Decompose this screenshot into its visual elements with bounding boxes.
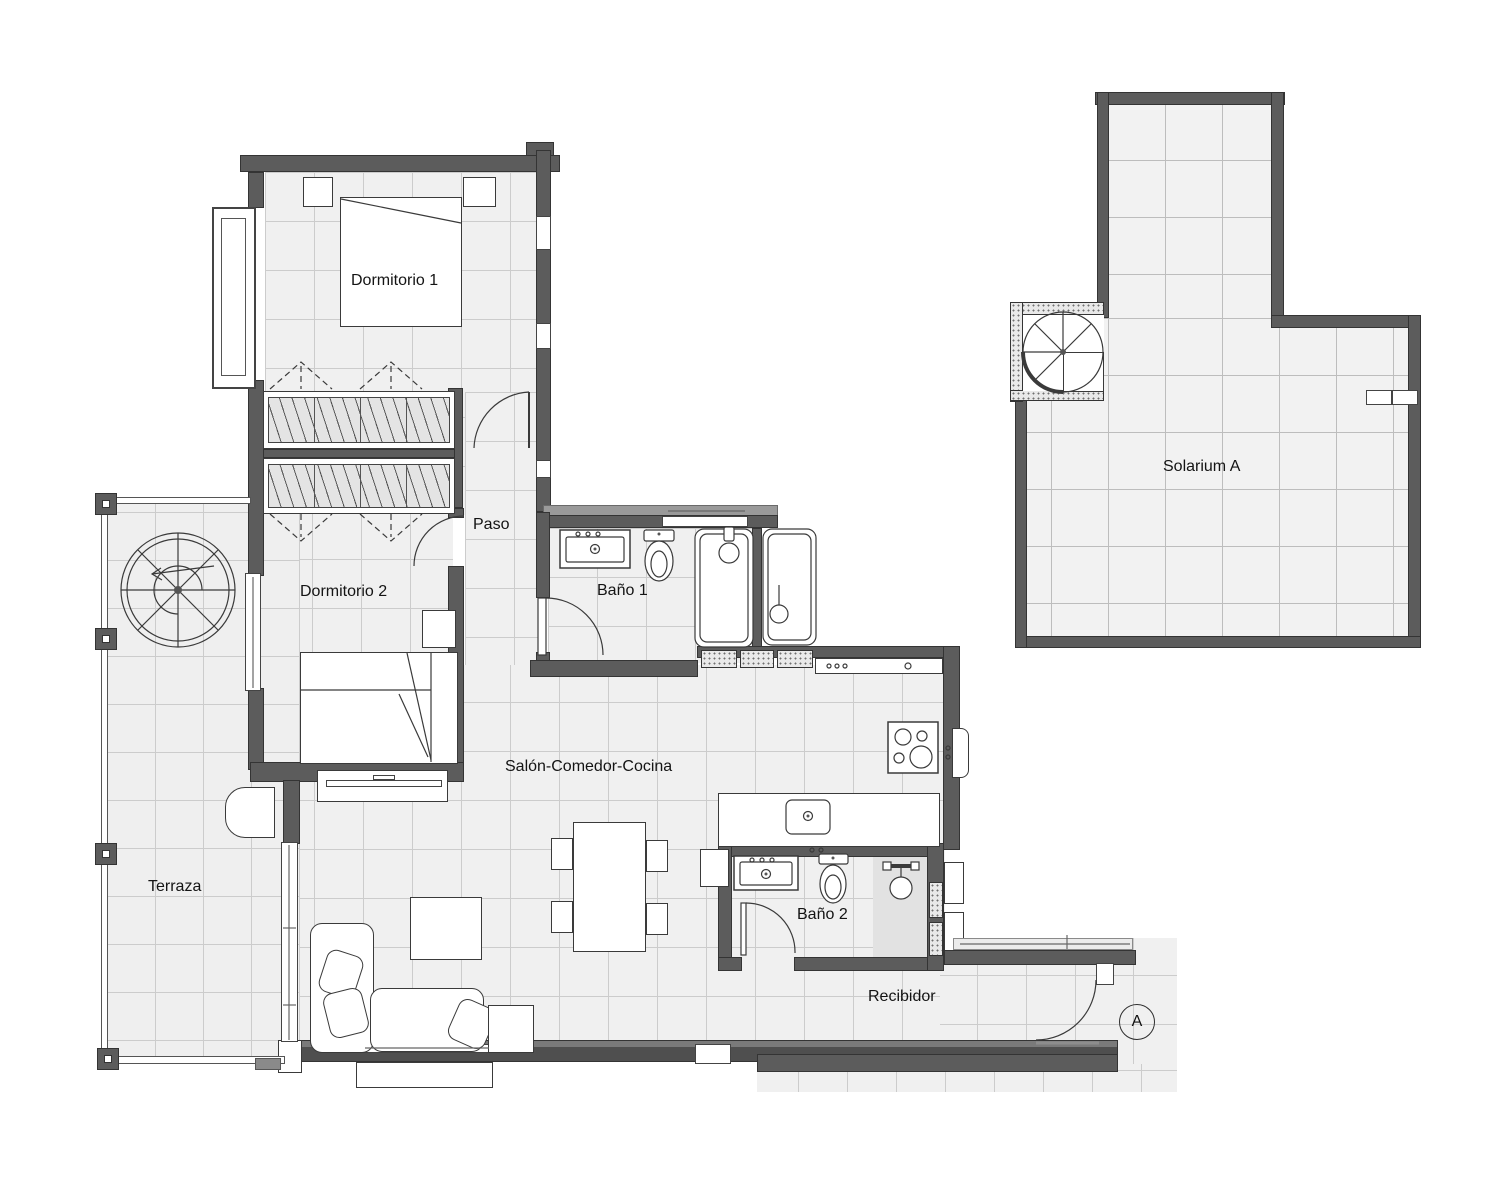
wardrobe-rail-2 <box>268 464 450 508</box>
tall-cabinet-icon <box>952 728 969 778</box>
wardrobe-icon-2 <box>263 458 455 514</box>
room-label-terraza: Terraza <box>148 878 201 896</box>
column-3 <box>777 650 813 668</box>
window-living-terraza <box>281 842 298 1042</box>
railing-post-1 <box>95 493 117 515</box>
shaft-column-1 <box>929 882 943 918</box>
wall-dorm1-top <box>240 155 560 172</box>
room-label-dormitorio-2: Dormitorio 2 <box>300 583 387 601</box>
nightstand-icon <box>422 610 456 648</box>
railing-post-3 <box>95 843 117 865</box>
sol-wall-step <box>1271 315 1421 328</box>
shaft-column-2 <box>929 922 943 956</box>
vent-window-2 <box>536 323 551 349</box>
sol-wall-left-upper <box>1097 92 1109 318</box>
wall-bano1-bottom <box>530 660 698 677</box>
room-label-paso: Paso <box>473 516 509 534</box>
wall-tub-divider <box>752 528 762 650</box>
bed1-pillow-right <box>463 177 496 207</box>
kitchen-counter <box>815 658 943 674</box>
window-dormitorio2 <box>245 573 261 691</box>
room-label-bano-1: Baño 1 <box>597 582 648 600</box>
wall-bottom-step <box>757 1054 1118 1072</box>
shaft-niche-1 <box>944 862 964 904</box>
window-dormitorio1 <box>212 207 256 389</box>
island-stool <box>700 849 729 887</box>
wardrobe-divider <box>263 449 455 458</box>
bed1-pillow-left <box>303 177 333 207</box>
rug-square <box>410 897 482 960</box>
sol-wall-top <box>1095 92 1285 105</box>
sol-wall-bottom <box>1015 636 1421 648</box>
ac-unit-icon <box>225 787 275 838</box>
sol-window-2 <box>1392 390 1418 405</box>
wall-living-left-stub <box>283 780 300 844</box>
wall-bano2-bottom-a <box>718 957 742 971</box>
bano1-sliding-door <box>662 516 748 527</box>
kitchen-island-icon <box>718 793 940 847</box>
room-label-solarium: Solarium A <box>1163 458 1240 476</box>
window-dormitorio1-inner <box>221 218 246 376</box>
entry-door-jamb <box>1096 963 1114 985</box>
bathtub-icon-neighbor <box>763 529 816 645</box>
recibidor-window-break <box>695 1044 731 1064</box>
terraza-railing-top <box>101 497 251 504</box>
window-sill <box>356 1062 493 1088</box>
sol-wall-right <box>1408 315 1421 648</box>
room-label-salon: Salón-Comedor-Cocina <box>505 758 672 776</box>
column-2 <box>740 650 774 668</box>
railing-post-2 <box>95 628 117 650</box>
room-label-bano-2: Baño 2 <box>797 906 848 924</box>
railing-end-block <box>255 1058 281 1070</box>
double-bed-icon <box>340 197 462 327</box>
wardrobe-rail-1 <box>268 397 450 443</box>
floor-plan: Dormitorio 1 Dormitorio 2 Paso Baño 1 Sa… <box>0 0 1486 1200</box>
coffee-table-icon <box>488 1005 534 1053</box>
floor-bano-1 <box>548 528 753 663</box>
stair-landing <box>1063 352 1104 392</box>
chair-icon-2 <box>551 901 573 933</box>
recibidor-ledge <box>953 938 1133 950</box>
tv-unit-icon <box>317 770 448 802</box>
wardrobe-icon-1 <box>263 391 455 449</box>
section-marker-a-label: A <box>1132 1013 1143 1031</box>
floor-solarium-upper <box>1108 103 1273 321</box>
sol-window-1 <box>1366 390 1392 405</box>
shower-floor-shade <box>873 857 927 957</box>
sol-wall-right-upper <box>1271 92 1284 328</box>
chair-icon-1 <box>551 838 573 870</box>
chair-icon-3 <box>646 840 668 872</box>
single-bed-icon <box>300 652 458 764</box>
stair-enclosure-left <box>1010 302 1023 402</box>
dining-table-icon <box>573 822 646 952</box>
column-1 <box>701 650 737 668</box>
wall-left-upper <box>248 172 264 208</box>
tv-stand <box>373 775 395 780</box>
tv-screen <box>326 780 442 787</box>
vent-window-3 <box>536 460 551 478</box>
stair-enclosure-top <box>1010 302 1104 315</box>
railing-post-4 <box>97 1048 119 1070</box>
room-label-dormitorio-1: Dormitorio 1 <box>351 272 438 290</box>
chair-icon-4 <box>646 903 668 935</box>
wall-bano1-left-upper <box>536 512 550 598</box>
wall-left-lower <box>248 688 264 770</box>
section-marker-a: A <box>1119 1004 1155 1040</box>
terraza-railing-left <box>101 497 108 1063</box>
sol-wall-left-lower <box>1015 392 1027 648</box>
room-label-recibidor: Recibidor <box>868 988 936 1006</box>
wall-bano2-bottom-b <box>794 957 944 971</box>
vent-window-1 <box>536 216 551 250</box>
wall-left-mid <box>248 380 264 576</box>
